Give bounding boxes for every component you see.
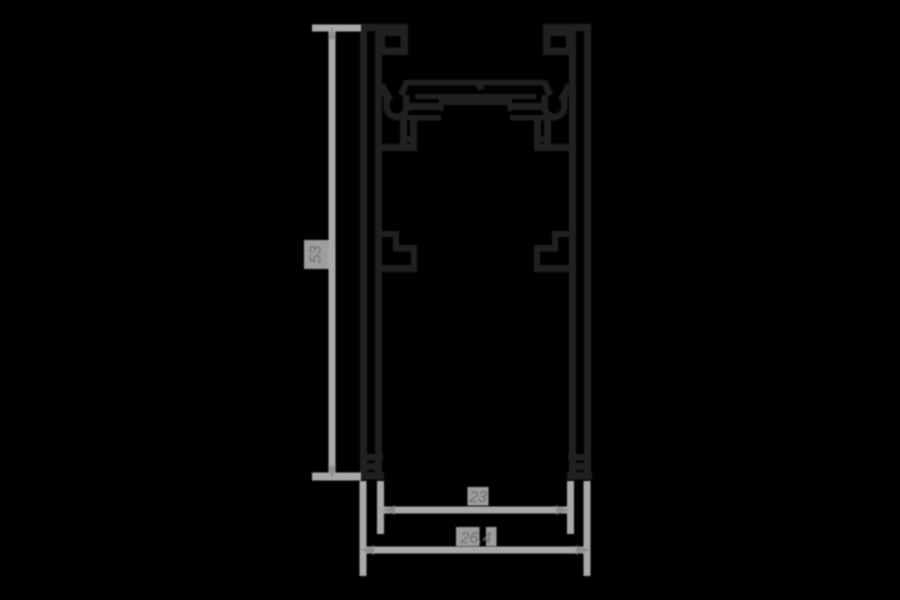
svg-text:53: 53 — [308, 246, 325, 264]
svg-text:26.4: 26.4 — [459, 530, 491, 547]
svg-text:23: 23 — [468, 489, 487, 506]
